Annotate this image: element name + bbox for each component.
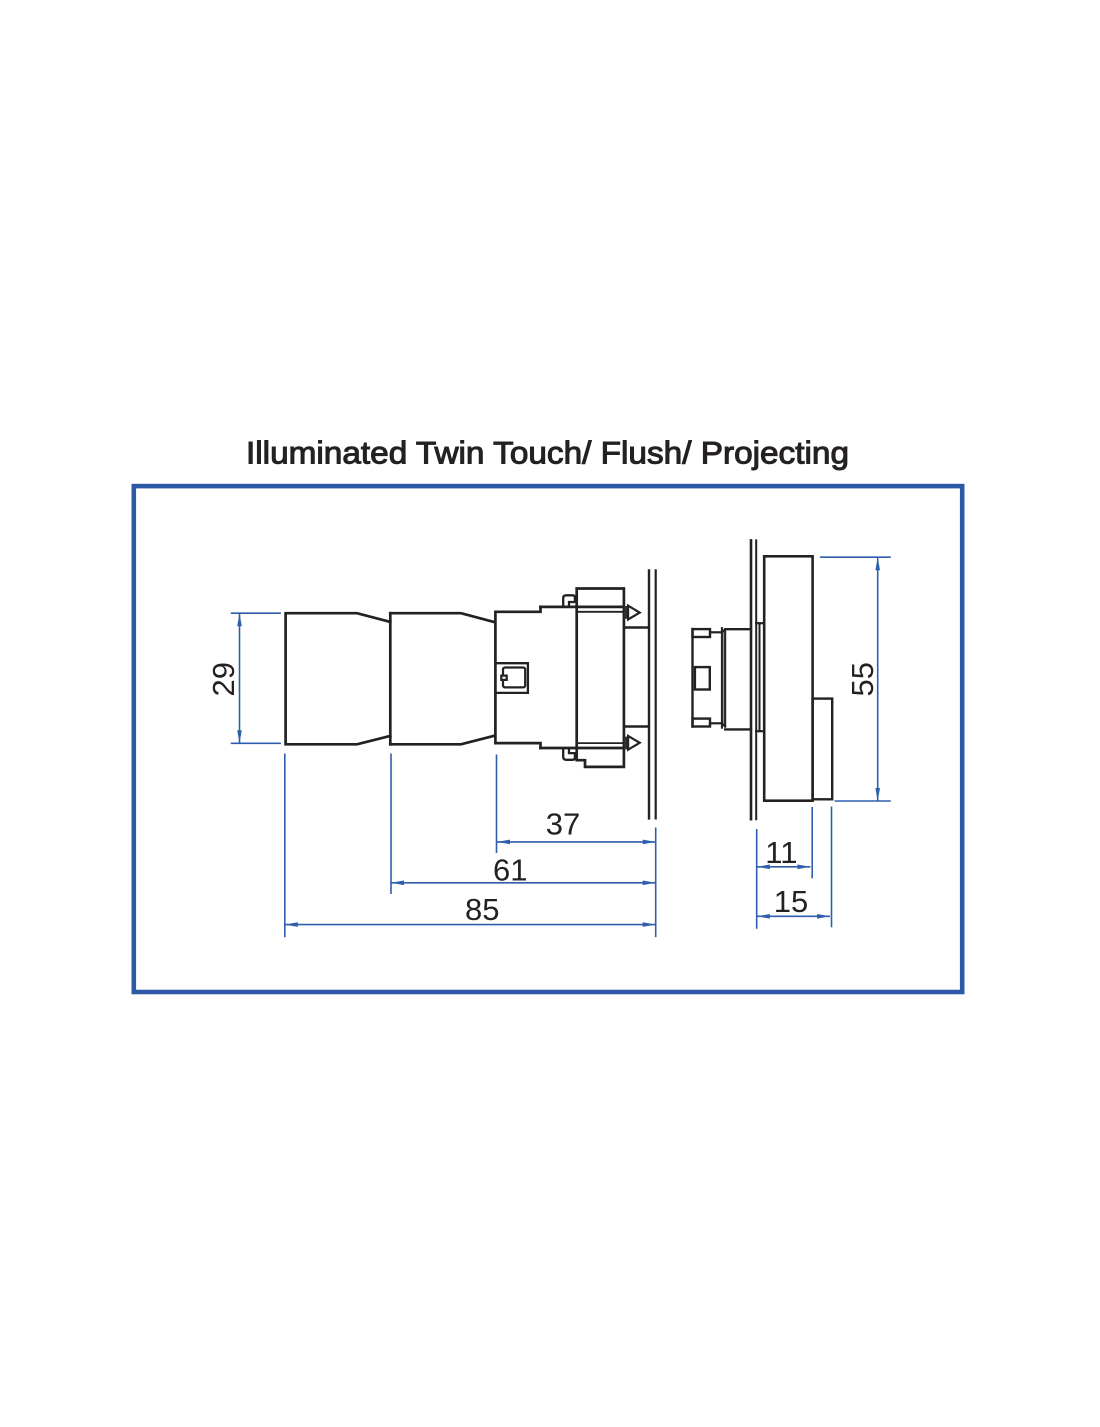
svg-text:11: 11	[765, 835, 797, 870]
svg-text:29: 29	[206, 662, 241, 696]
svg-text:37: 37	[546, 807, 580, 842]
svg-text:85: 85	[465, 892, 499, 927]
svg-text:Illuminated Twin Touch/ Flush/: Illuminated Twin Touch/ Flush/ Projectin…	[246, 434, 849, 470]
svg-text:15: 15	[774, 884, 808, 919]
svg-text:55: 55	[845, 662, 880, 696]
svg-text:61: 61	[493, 853, 527, 888]
